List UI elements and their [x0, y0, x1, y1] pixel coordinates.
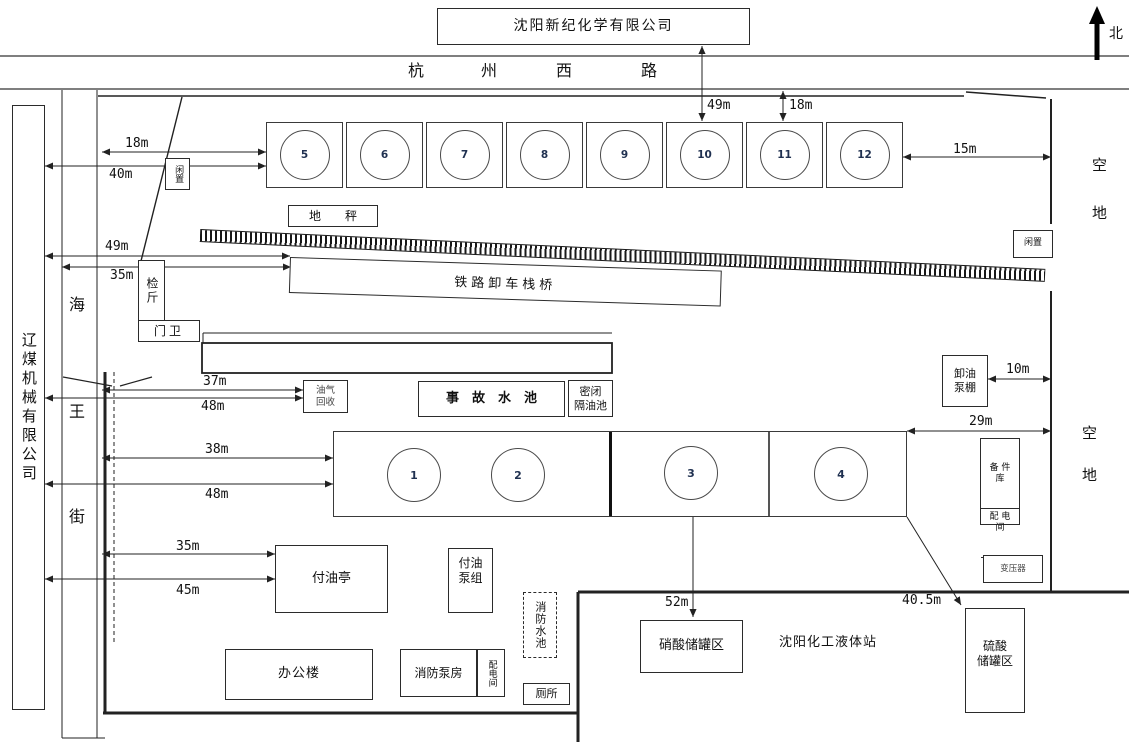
dim-west-38m: 38m: [204, 443, 229, 456]
spare-parts-store-box: 备 件 库: [981, 459, 1019, 488]
tank-6: 6: [360, 130, 410, 180]
company-title-box: 沈阳新纪化学有限公司: [437, 8, 750, 45]
office-building-box: 办公楼: [225, 649, 373, 700]
weigh-office-box: 检斤: [138, 260, 165, 322]
south-station-label: 沈阳化工液体站: [778, 634, 878, 652]
tank-cell: 11: [746, 122, 823, 188]
dim-west-18m: 18m: [124, 137, 149, 150]
vacant-upper-char-2: 地: [1092, 206, 1107, 221]
street-char-jie: 街: [69, 509, 85, 525]
tank-1: 1: [387, 448, 441, 502]
street-char-wang: 王: [69, 404, 85, 420]
dim-west-37m: 37m: [202, 375, 227, 388]
road-name-char-3: 西: [556, 63, 572, 79]
north-tank-row: 5 6 7 8 9 10 11 12: [266, 122, 903, 188]
accident-pool-box: 事 故 水 池: [418, 381, 565, 417]
tank-area-divider-thin: [768, 432, 770, 516]
dim-west-35m-b: 35m: [175, 540, 200, 553]
vacant-upper-char-1: 空: [1092, 158, 1107, 173]
idle-box-left: 闲置: [165, 158, 190, 190]
utility-stack: 备 件 库 配 电 间 发电 机房: [980, 438, 1020, 525]
oil-dispensing-kiosk-box: 付油亭: [275, 545, 388, 613]
north-label: 北: [1109, 27, 1123, 41]
north-arrow-icon: [1089, 6, 1105, 60]
nitric-acid-tank-area-box: 硝酸储罐区: [640, 620, 743, 673]
tank-2: 2: [491, 448, 545, 502]
dim-west-40m: 40m: [108, 168, 133, 181]
power-room-east-box: 配 电 间: [981, 508, 1019, 537]
tank-cell: 5: [266, 122, 343, 188]
toilet-box: 厕所: [523, 683, 570, 705]
dim-west-48m-b: 48m: [204, 488, 229, 501]
tank-area-divider-thick: [609, 432, 612, 516]
fire-water-pool-box: 消防水池: [523, 592, 557, 658]
tank-cell: 9: [586, 122, 663, 188]
sulfuric-acid-tank-area-box: 硫酸 储罐区: [965, 608, 1025, 713]
sealed-oil-separator-box: 密闭 隔油池: [568, 380, 613, 417]
dim-south-40-5m: 40.5m: [901, 594, 942, 607]
oil-pump-group-box: 付油 泵组: [448, 548, 493, 613]
tank-8: 8: [520, 130, 570, 180]
site-plan-diagram: 铁路卸车栈桥 沈阳新纪化学有限公司 杭 州 西 路 北 辽煤机械有限公司 海 王…: [0, 0, 1129, 742]
power-room-south-box: 配电间: [477, 649, 505, 697]
dim-east-15m: 15m: [952, 143, 977, 156]
tank-cell: 7: [426, 122, 503, 188]
tank-4: 4: [814, 447, 868, 501]
road-name-char-1: 杭: [408, 63, 424, 79]
dim-north-49m: 49m: [706, 99, 731, 112]
road-name-char-4: 路: [641, 63, 657, 79]
tank-3: 3: [664, 446, 718, 500]
road-name-char-2: 州: [481, 63, 497, 79]
tank-9: 9: [600, 130, 650, 180]
dim-north-18m: 18m: [788, 99, 813, 112]
dim-south-52m: 52m: [664, 596, 689, 609]
tank-5: 5: [280, 130, 330, 180]
weighbridge-box: 地 秤: [288, 205, 378, 227]
dim-west-49m: 49m: [104, 240, 129, 253]
tank-cell: 10: [666, 122, 743, 188]
vacant-lower-char-1: 空: [1082, 426, 1097, 441]
gate-house-box: 门卫: [138, 320, 200, 342]
vapor-recovery-box: 油气 回收: [303, 380, 348, 413]
idle-box-right: 闲置: [1013, 230, 1053, 258]
unloading-pump-shed-box: 卸油 泵棚: [942, 355, 988, 407]
vacant-lower-char-2: 地: [1082, 468, 1097, 483]
west-neighbor-company-box: 辽煤机械有限公司: [12, 105, 45, 710]
dim-east-29m: 29m: [968, 415, 993, 428]
transformer-box: 变压器: [983, 555, 1043, 583]
tank-cell: 8: [506, 122, 583, 188]
dim-west-45m: 45m: [175, 584, 200, 597]
street-char-hai: 海: [69, 297, 85, 313]
tank-12: 12: [840, 130, 890, 180]
dim-west-48m: 48m: [200, 400, 225, 413]
tank-11: 11: [760, 130, 810, 180]
fire-pump-house-box: 消防泵房: [400, 649, 477, 697]
tank-10: 10: [680, 130, 730, 180]
dim-east-10m: 10m: [1005, 363, 1030, 376]
tank-7: 7: [440, 130, 490, 180]
tank-cell: 12: [826, 122, 903, 188]
tank-cell: 6: [346, 122, 423, 188]
main-tank-area: 1 2 3 4: [333, 431, 907, 517]
dim-west-35m: 35m: [109, 269, 134, 282]
